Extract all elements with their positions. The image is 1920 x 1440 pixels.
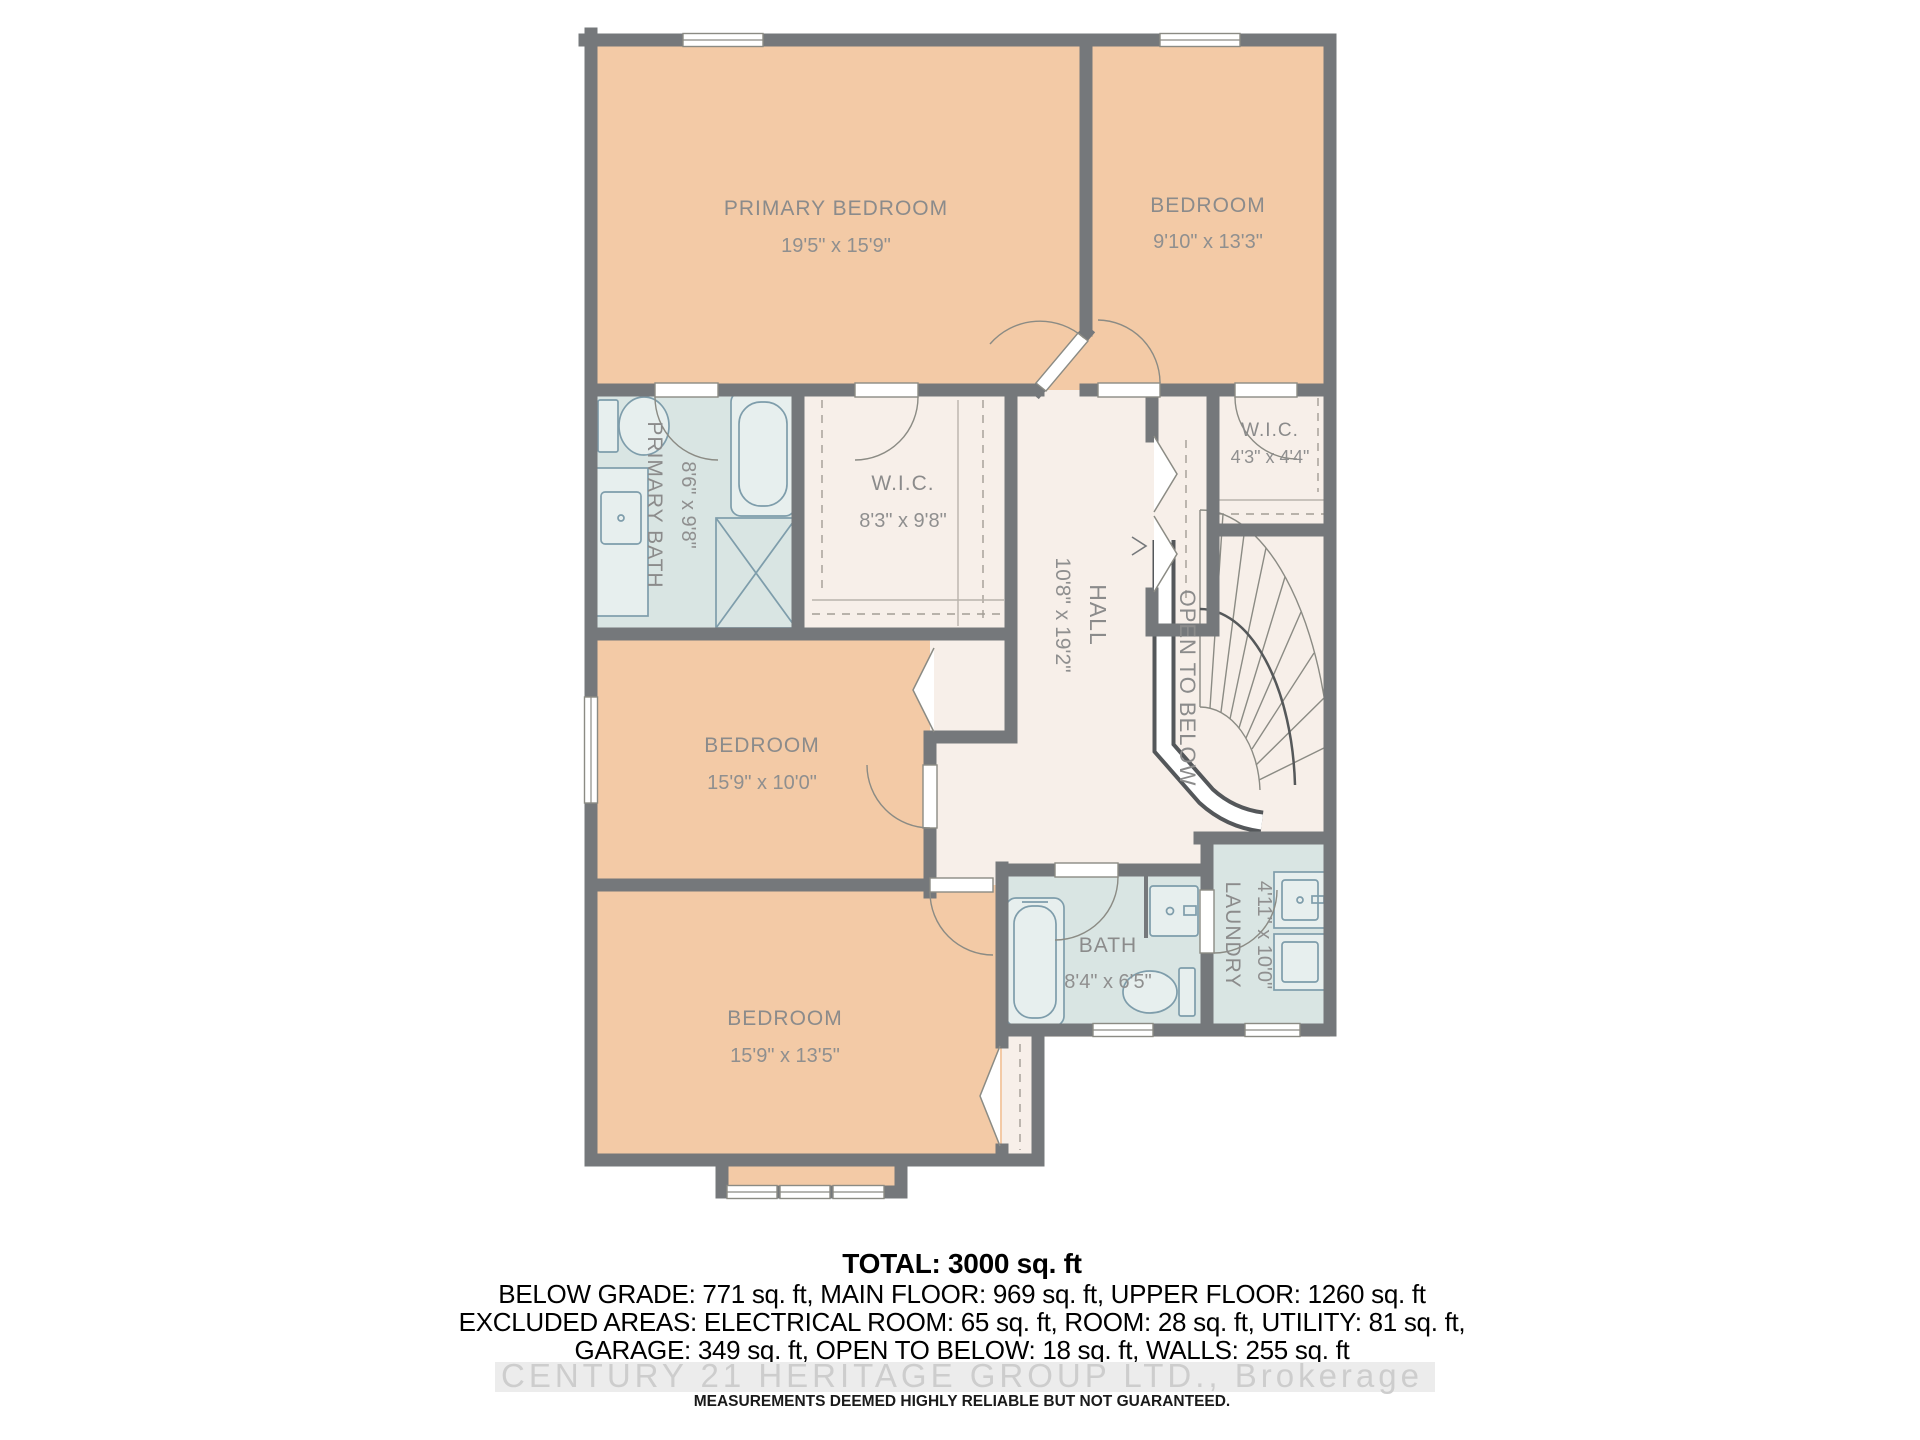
brokerage-watermark: CENTURY 21 HERITAGE GROUP LTD., Brokerag… [501,1357,1423,1394]
floor-plan-svg: PRIMARY BEDROOM 19'5" x 15'9" BEDROOM 9'… [0,0,1920,1440]
excluded-areas-text: EXCLUDED AREAS: ELECTRICAL ROOM: 65 sq. … [459,1307,1466,1337]
room-name: W.I.C. [871,472,934,495]
room-dims: 4'11" x 10'0" [1253,881,1275,989]
door-leaf [930,878,993,892]
room-dims: 19'5" x 15'9" [781,235,891,257]
room-name: PRIMARY BATH [643,421,666,588]
room-name: LAUNDRY [1221,882,1244,989]
room-name: W.I.C. [1241,420,1299,441]
room-name: HALL [1085,584,1111,646]
room-dims: 4'3" x 4'4" [1231,447,1310,467]
room-name: BEDROOM [704,734,820,757]
room-name: BEDROOM [1150,194,1266,217]
room-dims: 10'8" x 19'2" [1051,557,1074,672]
toilet-icon [598,400,618,452]
disclaimer-text: MEASUREMENTS DEEMED HIGHLY RELIABLE BUT … [694,1393,1231,1410]
footer-summary: TOTAL: 3000 sq. ft BELOW GRADE: 771 sq. … [459,1248,1466,1410]
window [833,1186,884,1199]
window [780,1186,830,1199]
door-leaf [655,383,718,397]
bathtub-icon [731,392,795,516]
window [683,34,763,47]
room-name: PRIMARY BEDROOM [724,197,948,220]
floor-plan-page: PRIMARY BEDROOM 19'5" x 15'9" BEDROOM 9'… [0,0,1920,1440]
window [1245,1024,1300,1037]
room-dims: 8'3" x 9'8" [859,510,946,532]
floor-areas-text: BELOW GRADE: 771 sq. ft, MAIN FLOOR: 969… [498,1279,1426,1309]
window [727,1186,777,1199]
room-dims: 15'9" x 10'0" [707,772,817,794]
open-to-below-label: OPEN TO BELOW [1175,590,1200,787]
door-leaf [1200,890,1214,953]
room-bedroom-bottom-area [591,885,1002,1192]
window [1093,1024,1153,1037]
door-leaf [1055,863,1118,877]
room-dims: 15'9" x 13'5" [730,1045,840,1067]
room-dims: 8'4" x 6'5" [1064,971,1151,993]
window [1160,34,1240,47]
door-leaf [855,383,918,397]
total-area-text: TOTAL: 3000 sq. ft [842,1248,1081,1279]
door-leaf [1098,383,1160,397]
room-dims: 8'6" x 9'8" [677,461,699,548]
room-name: BEDROOM [727,1007,843,1030]
door-leaf [923,765,937,828]
room-dims: 9'10" x 13'3" [1153,231,1263,253]
door-leaf [1235,383,1297,397]
window [585,697,598,803]
room-name: BATH [1079,934,1137,957]
room-bedroom-middle-area [591,634,930,885]
